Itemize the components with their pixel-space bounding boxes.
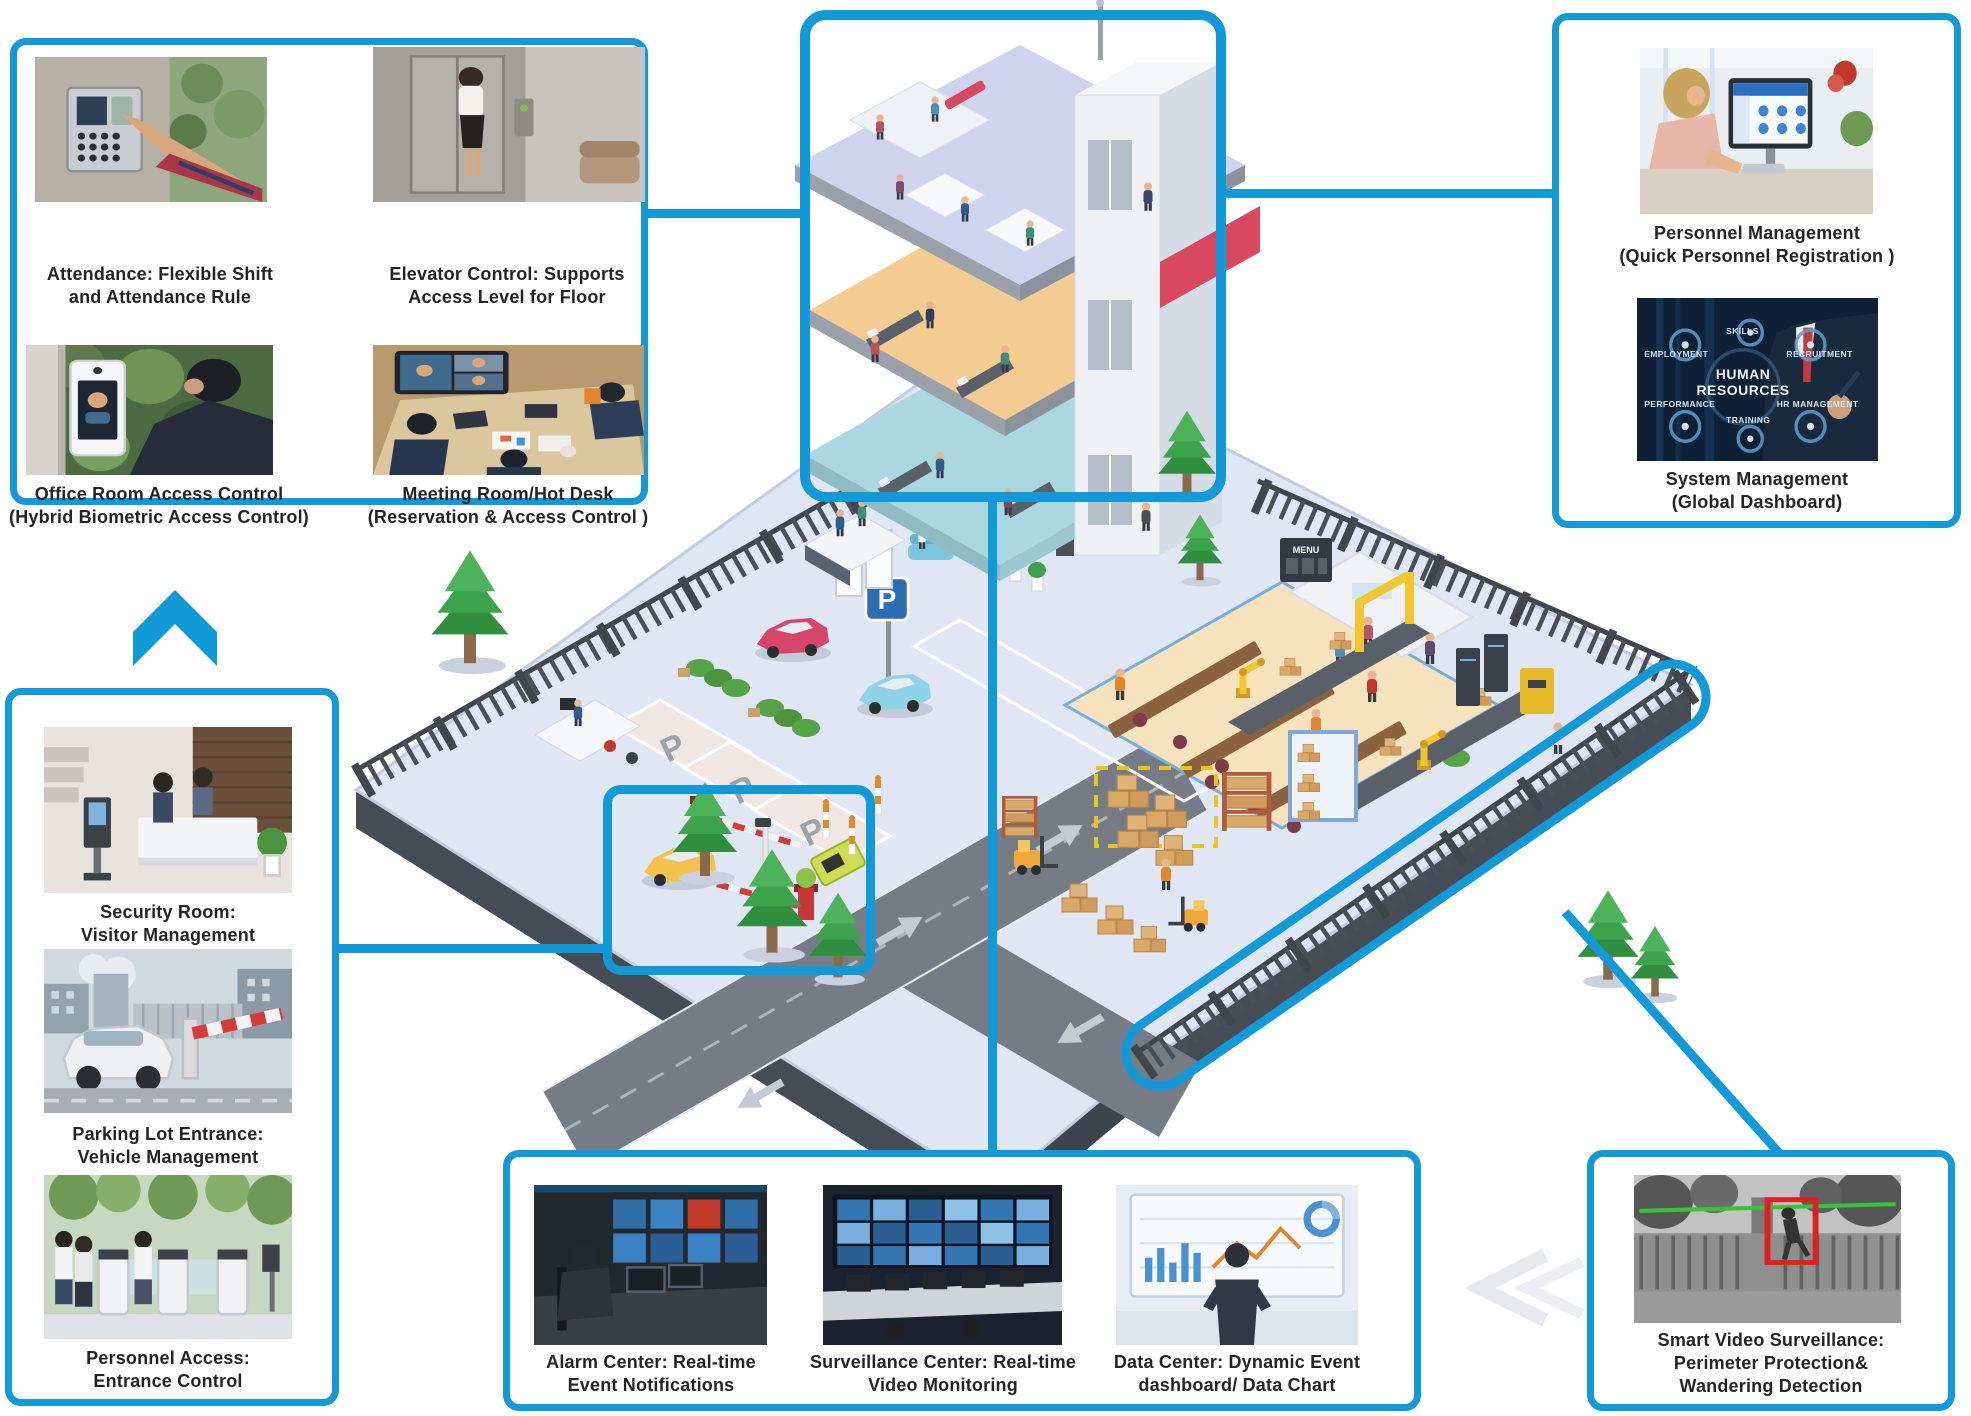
management-callout: Personnel Management (Quick Personnel Re…: [1552, 13, 1961, 528]
hr-label-skills: SKILLS: [1726, 326, 1759, 336]
connector-building-to-centers: [988, 500, 997, 1155]
caption-personnel-management: Personnel Management (Quick Personnel Re…: [1595, 222, 1919, 268]
caption-meeting-room: Meeting Room/Hot Desk (Reservation & Acc…: [355, 483, 661, 529]
svg-text:MENU: MENU: [1293, 545, 1320, 555]
smart-video-photo: [1634, 1175, 1901, 1323]
hr-label-performance: PERFORMANCE: [1644, 399, 1715, 409]
caption-office-access: Office Room Access Control (Hybrid Biome…: [9, 483, 309, 529]
video-surveillance-callout: Smart Video Surveillance: Perimeter Prot…: [1587, 1150, 1955, 1411]
up-chevron-arrow: [133, 590, 217, 666]
security-room-photo: [44, 727, 292, 893]
hr-label-training: TRAINING: [1726, 415, 1770, 425]
smart-campus-infographic: P P P P ME: [0, 0, 1971, 1416]
personnel-management-photo: [1640, 48, 1873, 214]
data-center-photo: [1116, 1185, 1358, 1345]
hr-label-hr-management: HR MANAGEMENT: [1777, 399, 1859, 409]
access-control-callout: Attendance: Flexible Shift and Attendanc…: [10, 38, 648, 505]
caption-surveillance-center: Surveillance Center: Real-time Video Mon…: [802, 1351, 1084, 1397]
menu-board: MENU: [1280, 538, 1332, 582]
control-center-callout: Alarm Center: Real-time Event Notificati…: [503, 1150, 1421, 1411]
surveillance-center-photo: [823, 1185, 1062, 1345]
caption-attendance: Attendance: Flexible Shift and Attendanc…: [17, 263, 303, 309]
meeting-room-photo: [373, 345, 644, 475]
checkpoint-highlight: [603, 785, 875, 975]
caption-alarm-center: Alarm Center: Real-time Event Notificati…: [510, 1351, 792, 1397]
caption-system-management: System Management (Global Dashboard): [1595, 468, 1919, 514]
hr-center-text: HUMAN RESOURCES: [1671, 366, 1816, 398]
office-access-photo: [26, 345, 273, 475]
caption-parking-entrance: Parking Lot Entrance: Vehicle Management: [18, 1123, 318, 1169]
attendance-photo: [35, 57, 267, 202]
building-highlight: [800, 10, 1226, 502]
connector-entrance-to-checkpoint: [336, 944, 606, 953]
system-management-photo: EMPLOYMENT SKILLS RECRUITMENT PERFORMANC…: [1637, 298, 1878, 461]
caption-smart-video: Smart Video Surveillance: Perimeter Prot…: [1608, 1329, 1934, 1398]
direction-arrow: [1480, 1255, 1582, 1320]
caption-data-center: Data Center: Dynamic Event dashboard/ Da…: [1096, 1351, 1378, 1397]
connector-access-to-building: [641, 209, 803, 218]
hr-label-recruitment: RECRUITMENT: [1786, 349, 1852, 359]
hr-label-employment: EMPLOYMENT: [1644, 349, 1708, 359]
caption-personnel-access: Personnel Access: Entrance Control: [18, 1347, 318, 1393]
entrance-callout: Security Room: Visitor Management Parkin…: [5, 688, 339, 1406]
personnel-access-photo: [44, 1175, 292, 1339]
alarm-center-photo: [534, 1185, 767, 1345]
elevator-photo: [373, 47, 645, 202]
parking-entrance-photo: [44, 949, 292, 1113]
connector-building-to-management: [1223, 189, 1555, 198]
caption-elevator-control: Elevator Control: Supports Access Level …: [357, 263, 657, 309]
caption-security-room: Security Room: Visitor Management: [18, 901, 318, 947]
